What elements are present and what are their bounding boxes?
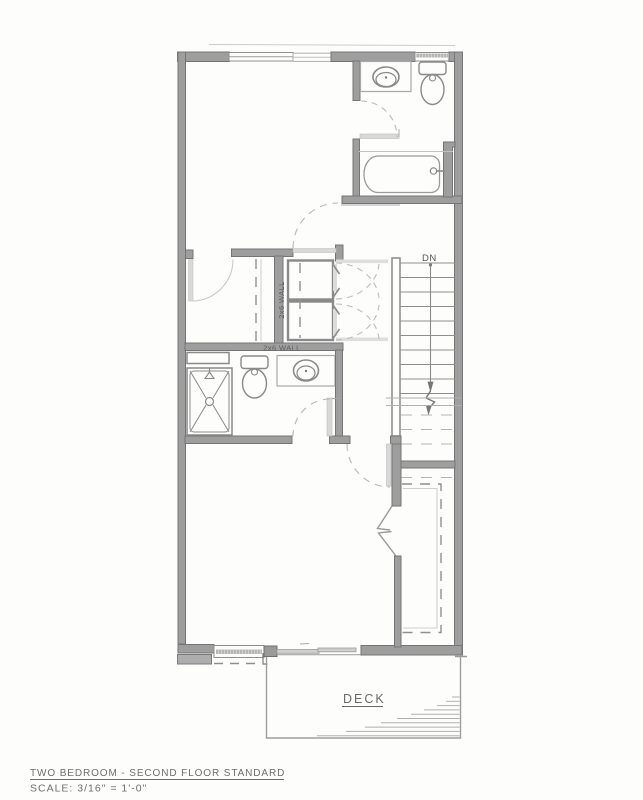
svg-text:2x6 WALL: 2x6 WALL xyxy=(277,281,286,319)
svg-text:TWO BEDROOM - SECOND FLOOR ST: TWO BEDROOM - SECOND FLOOR STANDARD xyxy=(30,768,285,779)
svg-text:SCALE: 3/16" = 1'-0": SCALE: 3/16" = 1'-0" xyxy=(30,783,147,795)
svg-text:DECK: DECK xyxy=(343,692,386,706)
svg-text:2x6 WALL: 2x6 WALL xyxy=(263,344,301,353)
svg-text:DN: DN xyxy=(422,253,437,264)
